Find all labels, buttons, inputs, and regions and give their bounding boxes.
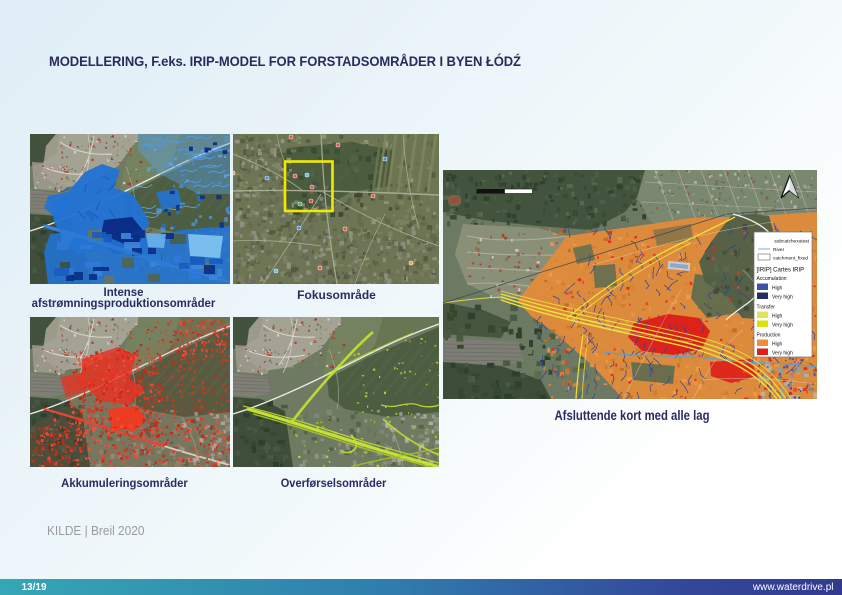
svg-text:0: 0 — [475, 183, 478, 189]
svg-text:subcatchexutest: subcatchexutest — [774, 239, 809, 245]
svg-text:200 m: 200 m — [524, 183, 538, 189]
svg-text:High: High — [772, 314, 783, 320]
svg-text:Production: Production — [757, 333, 781, 339]
svg-text:[IRIP] Cartes IRIP: [IRIP] Cartes IRIP — [757, 268, 805, 274]
svg-text:Very high: Very high — [772, 323, 793, 329]
svg-text:Very high: Very high — [772, 295, 793, 301]
svg-text:Transfer: Transfer — [757, 305, 776, 311]
svg-text:catchment_fixed: catchment_fixed — [773, 256, 808, 262]
svg-text:River: River — [773, 247, 785, 253]
svg-text:High: High — [772, 286, 783, 292]
svg-text:Very high: Very high — [772, 351, 793, 357]
svg-text:High: High — [772, 342, 783, 348]
svg-text:Accumulation: Accumulation — [757, 276, 787, 282]
svg-text:100: 100 — [498, 183, 507, 189]
